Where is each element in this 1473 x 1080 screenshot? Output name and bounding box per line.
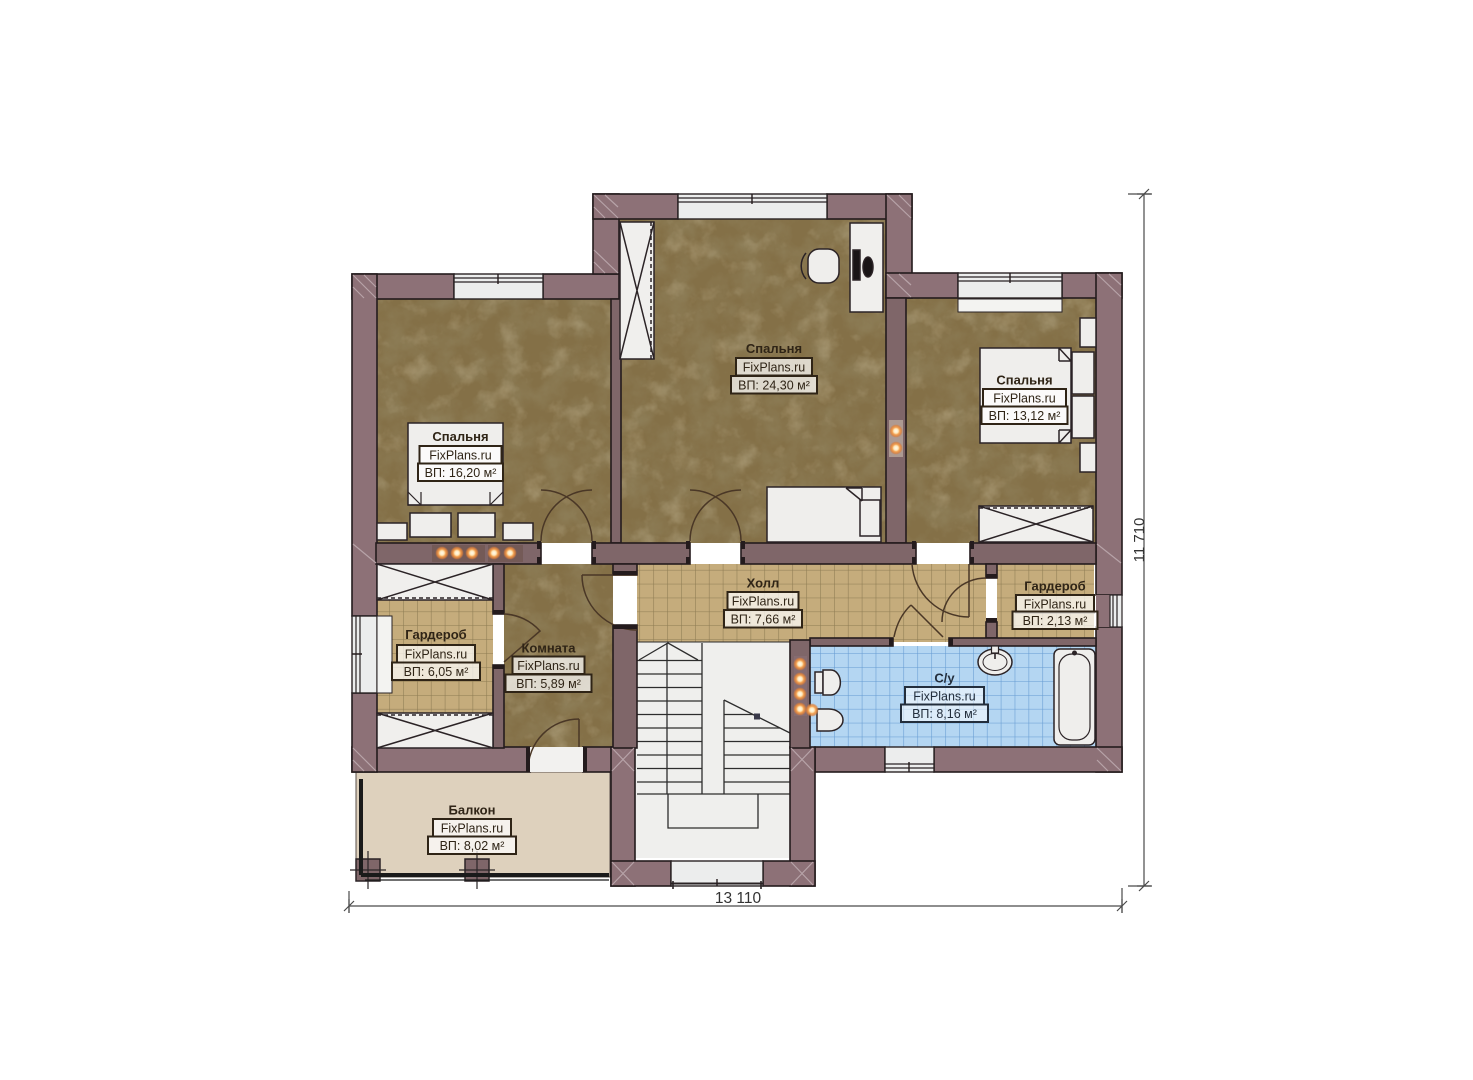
svg-text:Спальня: Спальня (996, 373, 1052, 388)
svg-text:FixPlans.ru: FixPlans.ru (1024, 598, 1087, 612)
svg-text:С/у: С/у (934, 671, 955, 686)
svg-text:ВП: 8,16 м²: ВП: 8,16 м² (912, 707, 977, 721)
svg-text:11 710: 11 710 (1131, 518, 1148, 563)
svg-text:Холл: Холл (747, 576, 780, 591)
svg-text:ВП: 24,30 м²: ВП: 24,30 м² (738, 379, 810, 393)
svg-text:ВП: 8,02 м²: ВП: 8,02 м² (440, 839, 505, 853)
svg-text:Спальня: Спальня (746, 341, 802, 356)
svg-text:ВП: 7,66 м²: ВП: 7,66 м² (731, 613, 796, 627)
svg-text:ВП: 13,12 м²: ВП: 13,12 м² (989, 409, 1061, 423)
svg-text:FixPlans.ru: FixPlans.ru (517, 659, 580, 673)
svg-text:Спальня: Спальня (432, 429, 488, 444)
svg-text:Балкон: Балкон (449, 803, 496, 818)
svg-text:FixPlans.ru: FixPlans.ru (913, 690, 976, 704)
svg-text:FixPlans.ru: FixPlans.ru (993, 392, 1056, 406)
svg-text:ВП: 6,05 м²: ВП: 6,05 м² (404, 665, 469, 679)
svg-text:13 110: 13 110 (715, 890, 762, 907)
svg-text:ВП: 5,89 м²: ВП: 5,89 м² (516, 677, 581, 691)
svg-text:Комната: Комната (522, 641, 577, 656)
svg-text:FixPlans.ru: FixPlans.ru (732, 595, 795, 609)
svg-text:FixPlans.ru: FixPlans.ru (429, 449, 492, 463)
svg-text:ВП: 2,13 м²: ВП: 2,13 м² (1023, 614, 1088, 628)
svg-text:Гардероб: Гардероб (1024, 579, 1085, 594)
svg-text:FixPlans.ru: FixPlans.ru (441, 822, 504, 836)
svg-text:Гардероб: Гардероб (405, 627, 466, 642)
svg-text:FixPlans.ru: FixPlans.ru (405, 648, 468, 662)
svg-text:FixPlans.ru: FixPlans.ru (743, 361, 806, 375)
svg-text:ВП: 16,20 м²: ВП: 16,20 м² (425, 466, 497, 480)
